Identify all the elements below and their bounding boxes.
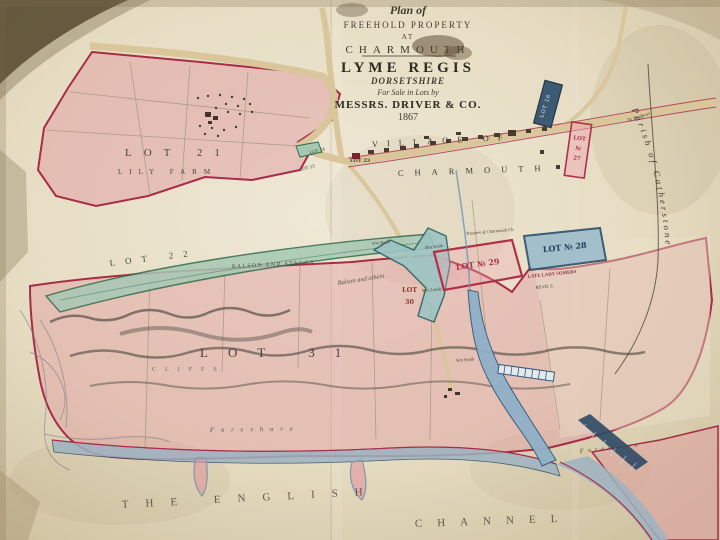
title-lyme-regis: LYME REGIS [341,60,475,76]
label-lily-farm: LILY FARM [118,168,217,176]
label-cliffs: CLIFFS [152,367,226,373]
label-lot23: LOT 23 [350,158,371,164]
svg-text:30: 30 [405,298,415,306]
title-dorsetshire: DORSETSHIRE [370,76,445,86]
title-year: 1867 [398,112,418,123]
charmouth-map-svg: Plan of FREEHOLD PROPERTY AT CHARMOUTH L… [0,0,720,540]
title-freehold: FREEHOLD PROPERTY [344,20,473,30]
title-messrs: MESSRS. DRIVER & CO. [335,99,482,111]
title-for-sale: For Sale in Lots by [376,88,439,97]
svg-text:LOT: LOT [402,286,417,294]
svg-text:№: № [575,145,582,153]
label-lot31: LOT 31 [200,345,361,360]
label-lot21: LOT 21 [125,147,232,159]
title-plan-of: Plan of [390,3,427,17]
title-at: AT [402,33,415,41]
map-photo: Plan of FREEHOLD PROPERTY AT CHARMOUTH L… [0,0,720,540]
title-block: Plan of FREEHOLD PROPERTY AT CHARMOUTH L… [335,3,482,123]
svg-text:27: 27 [573,155,582,162]
